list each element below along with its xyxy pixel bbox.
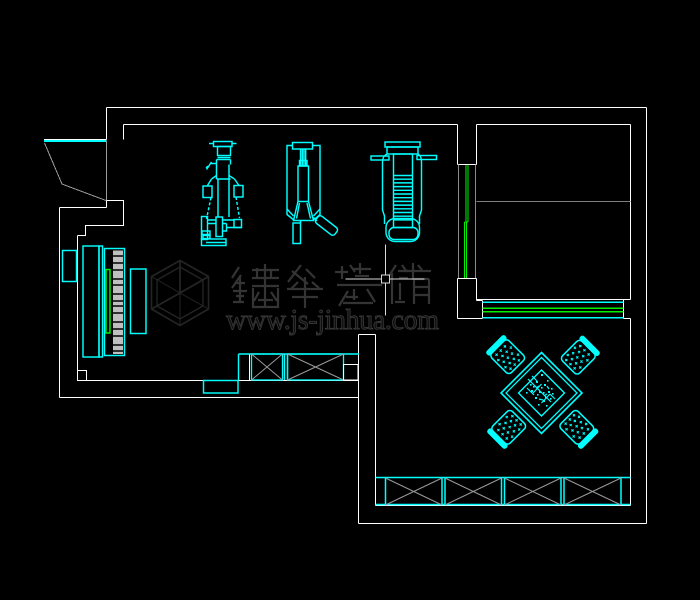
- svg-text:www.js-jinhua.com: www.js-jinhua.com: [226, 305, 439, 336]
